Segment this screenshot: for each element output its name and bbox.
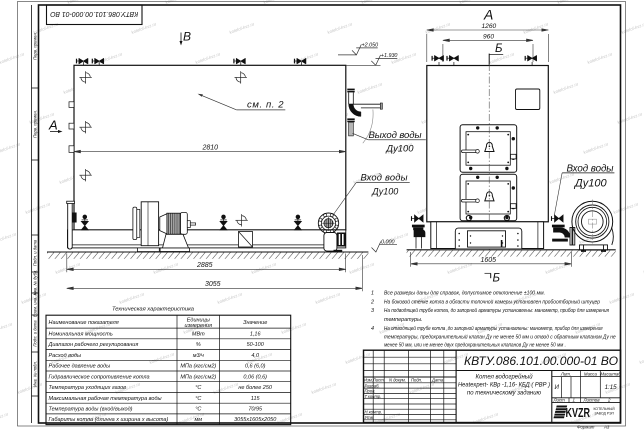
svg-text:%: %: [196, 342, 201, 348]
svg-text:Ду100: Ду100: [371, 187, 398, 197]
svg-text:Н.контр.: Н.контр.: [365, 410, 383, 415]
svg-text:Техническая характеристика: Техническая характеристика: [112, 307, 195, 313]
svg-text:kotelof-kvz.ru: kotelof-kvz.ru: [0, 231, 17, 245]
svg-text:kotelof-kvz.ru: kotelof-kvz.ru: [0, 141, 21, 155]
svg-text:3055: 3055: [205, 281, 221, 288]
svg-text:kotelof-kvz.ru: kotelof-kvz.ru: [311, 381, 338, 395]
svg-text:kotelof-kvz.ru: kotelof-kvz.ru: [165, 0, 192, 5]
svg-text:kotelof-kvz.ru: kotelof-kvz.ru: [345, 351, 372, 365]
svg-text:2810: 2810: [202, 145, 219, 152]
svg-text:Ду100: Ду100: [573, 177, 608, 189]
svg-text:КВТУ.086.101.00.000-01 ВО: КВТУ.086.101.00.000-01 ВО: [464, 354, 618, 368]
svg-text:1260: 1260: [482, 23, 497, 30]
svg-text:температуры.: температуры.: [384, 317, 423, 323]
svg-text:4,0: 4,0: [251, 353, 260, 359]
svg-text:Рабочее давление воды: Рабочее давление воды: [49, 364, 111, 370]
svg-text:Heatexpert- КВр -1,16- КБД ( Р: Heatexpert- КВр -1,16- КБД ( РВР ): [458, 383, 550, 389]
svg-text:kotelof-kvz.ru: kotelof-kvz.ru: [251, 261, 278, 275]
svg-text:Подп. и дата: Подп. и дата: [33, 239, 38, 266]
svg-text:Перв. примен.: Перв. примен.: [33, 110, 38, 138]
svg-text:Пров.: Пров.: [365, 389, 376, 394]
svg-text:°С: °С: [195, 385, 201, 391]
svg-text:2885: 2885: [196, 262, 213, 269]
svg-text:1605: 1605: [481, 257, 497, 264]
svg-text:+1.930: +1.930: [381, 53, 398, 59]
svg-text:kotelof-kvz.ru: kotelof-kvz.ru: [67, 0, 94, 5]
svg-text:МВт: МВт: [192, 331, 205, 337]
svg-text:Масштаб: Масштаб: [600, 371, 621, 376]
svg-text:N докум.: N докум.: [389, 377, 406, 382]
svg-text:kotelof-kvz.ru: kotelof-kvz.ru: [357, 81, 384, 95]
svg-text:960: 960: [483, 34, 494, 41]
svg-text:kotelof-kvz.ru: kotelof-kvz.ru: [557, 0, 584, 5]
svg-text:kotelof-kvz.ru: kotelof-kvz.ru: [621, 21, 644, 35]
svg-text:не более 250: не более 250: [238, 385, 273, 391]
svg-text:kotelof-kvz.ru: kotelof-kvz.ru: [131, 21, 158, 35]
svg-text:Перв. примен.: Перв. примен.: [33, 32, 38, 60]
svg-text:Гидравлическое сопротивление к: Гидравлическое сопротивление котла: [49, 374, 150, 380]
svg-text:0,06 (0,6): 0,06 (0,6): [243, 374, 267, 380]
svg-text:Лист: Лист: [553, 398, 566, 403]
svg-text:kotelof-kvz.ru: kotelof-kvz.ru: [459, 0, 486, 5]
svg-text:°С: °С: [195, 396, 201, 402]
svg-text:Габариты котла (длинна х ширин: Габариты котла (длинна х ширина х высота…: [49, 417, 169, 423]
svg-text:Ду100: Ду100: [385, 142, 414, 153]
svg-text:Наименование показателя: Наименование показателя: [49, 320, 119, 326]
svg-text:3055х1605х2050: 3055х1605х2050: [234, 417, 277, 423]
svg-text:kotelof-kvz.ru: kotelof-kvz.ru: [523, 21, 550, 35]
svg-text:На боковой стенке котла в обла: На боковой стенке котла в области топочн…: [384, 298, 600, 305]
svg-text:температуры, предохранительный: температуры, предохранительный клапан Ду…: [384, 334, 616, 341]
svg-text:2: 2: [370, 299, 374, 305]
svg-text:kotelof-kvz.ru: kotelof-kvz.ru: [613, 201, 640, 215]
svg-text:kotelof-kvz.ru: kotelof-kvz.ru: [55, 261, 82, 275]
svg-text:Масса: Масса: [584, 371, 598, 376]
svg-text:Все размеры даны для справок,: Все размеры даны для справок, допустимое…: [384, 291, 545, 297]
svg-text:Листов: Листов: [583, 398, 601, 403]
svg-text:kotelof-kvz.ru: kotelof-kvz.ru: [195, 51, 222, 65]
svg-text:Взам. инв. №: Взам. инв. №: [33, 291, 38, 317]
svg-text:Утв.: Утв.: [365, 415, 375, 420]
svg-text:Б: Б: [495, 43, 503, 55]
svg-text:Б: Б: [493, 273, 501, 285]
svg-text:KVZR: KVZR: [566, 405, 591, 420]
svg-text:Формат: Формат: [577, 424, 595, 429]
svg-text:В: В: [183, 30, 191, 44]
svg-text:Температура воды (вход/выход): Температура воды (вход/выход): [49, 407, 133, 413]
svg-text:kotelof-kvz.ru: kotelof-kvz.ru: [0, 321, 13, 335]
svg-text:Подп.: Подп.: [411, 377, 422, 382]
svg-text:kotelof-kvz.ru: kotelof-kvz.ru: [609, 291, 636, 305]
svg-text:70/95: 70/95: [248, 407, 263, 413]
svg-text:А: А: [48, 118, 58, 133]
svg-text:КВТУ.086.101.00.000-01 ВО: КВТУ.086.101.00.000-01 ВО: [50, 10, 139, 17]
svg-text:kotelof-kvz.ru: kotelof-kvz.ru: [263, 0, 290, 5]
svg-text:Разраб.: Разраб.: [365, 383, 380, 388]
svg-text:°С: °С: [195, 407, 201, 413]
svg-text:измерения: измерения: [185, 323, 213, 329]
svg-text:Инв. № подл.: Инв. № подл.: [33, 361, 38, 387]
svg-text:Т.контр.: Т.контр.: [365, 394, 382, 399]
svg-text:kotelof-kvz.ru: kotelof-kvz.ru: [327, 21, 354, 35]
svg-text:м3/ч: м3/ч: [193, 353, 204, 359]
svg-text:МПа (кгс/см2): МПа (кгс/см2): [180, 364, 216, 370]
svg-text:МПа (кгс/см2): МПа (кгс/см2): [180, 374, 216, 380]
svg-text:kotelof-kvz.ru: kotelof-kvz.ru: [425, 21, 452, 35]
svg-text:0,6 (6,0): 0,6 (6,0): [245, 364, 266, 370]
svg-text:Расход воды: Расход воды: [49, 353, 82, 359]
svg-text:2: 2: [607, 398, 611, 403]
svg-text:115: 115: [251, 396, 261, 402]
svg-text:0.000: 0.000: [381, 239, 395, 245]
svg-text:А: А: [483, 6, 493, 22]
svg-text:И: И: [555, 384, 560, 391]
svg-text:4: 4: [371, 326, 374, 332]
svg-text:kotelof-kvz.ru: kotelof-kvz.ru: [587, 51, 614, 65]
svg-text:Значение: Значение: [243, 320, 267, 326]
svg-text:+2.050: +2.050: [362, 43, 379, 49]
svg-text:см. п. 2: см. п. 2: [247, 100, 284, 111]
svg-text:Диапазон рабочего регулировани: Диапазон рабочего регулирования: [48, 342, 139, 348]
svg-text:kotelof-kvz.ru: kotelof-kvz.ru: [213, 381, 240, 395]
svg-text:Подп. и дата: Подп. и дата: [33, 320, 38, 347]
svg-text:3: 3: [371, 308, 374, 314]
svg-text:1,16: 1,16: [250, 331, 262, 337]
svg-text:Температура уходящих газов: Температура уходящих газов: [49, 385, 127, 391]
svg-text:kotelof-kvz.ru: kotelof-kvz.ru: [17, 381, 44, 395]
svg-text:Номинальная мощность: Номинальная мощность: [49, 331, 113, 337]
svg-text:1: 1: [371, 291, 374, 297]
svg-text:Изм.Лист: Изм.Лист: [364, 377, 384, 382]
svg-text:1: 1: [573, 398, 576, 403]
svg-text:Лит.: Лит.: [560, 371, 571, 376]
svg-text:по техническому заданию: по техническому заданию: [467, 391, 542, 397]
svg-text:kotelof-kvz.ru: kotelof-kvz.ru: [447, 261, 474, 275]
svg-text:kotelof-kvz.ru: kotelof-kvz.ru: [315, 291, 342, 305]
svg-text:kotelof-kvz.ru: kotelof-kvz.ru: [97, 51, 124, 65]
svg-text:kotelof-kvz.ru: kotelof-kvz.ru: [0, 51, 25, 65]
svg-text:1:15: 1:15: [605, 384, 618, 391]
svg-text:Котел водогрейный: Котел водогрейный: [475, 374, 533, 381]
svg-text:ЗАВОД РЭП: ЗАВОД РЭП: [595, 412, 615, 416]
svg-text:kotelof-kvz.ru: kotelof-kvz.ru: [217, 291, 244, 305]
svg-text:На отводящей трубе котла ,до з: На отводящей трубе котла ,до запорной ар…: [384, 325, 603, 332]
svg-text:мм: мм: [195, 417, 203, 423]
svg-text:kotelof-kvz.ru: kotelof-kvz.ru: [119, 291, 146, 305]
svg-text:kotelof-kvz.ru: kotelof-kvz.ru: [149, 351, 176, 365]
svg-text:50-100: 50-100: [247, 342, 265, 348]
svg-text:На подводящей трубе котла, д: На подводящей трубе котла, до запорной а…: [384, 307, 609, 314]
svg-text:kotelof-kvz.ru: kotelof-kvz.ru: [0, 411, 9, 425]
svg-text:kotelof-kvz.ru: kotelof-kvz.ru: [553, 81, 580, 95]
svg-text:КОТЕЛЬНЫЙ: КОТЕЛЬНЫЙ: [594, 407, 616, 411]
svg-text:kotelof-kvz.ru: kotelof-kvz.ru: [361, 0, 388, 5]
svg-text:А3: А3: [603, 424, 610, 429]
svg-text:kotelof-kvz.ru: kotelof-kvz.ru: [153, 261, 180, 275]
svg-text:kotelof-kvz.ru: kotelof-kvz.ru: [229, 21, 256, 35]
svg-text:kotelof-kvz.ru: kotelof-kvz.ru: [639, 351, 644, 365]
svg-text:Дата: Дата: [431, 377, 444, 382]
svg-text:Максимальная рабочая температу: Максимальная рабочая температура воды: [49, 396, 162, 402]
svg-text:менее 50 мм, или не менее двух: менее 50 мм, или не менее двух предохран…: [384, 343, 566, 349]
svg-text:kotelof-kvz.ru: kotelof-kvz.ru: [583, 141, 610, 155]
svg-text:Вход воды: Вход воды: [361, 172, 408, 183]
